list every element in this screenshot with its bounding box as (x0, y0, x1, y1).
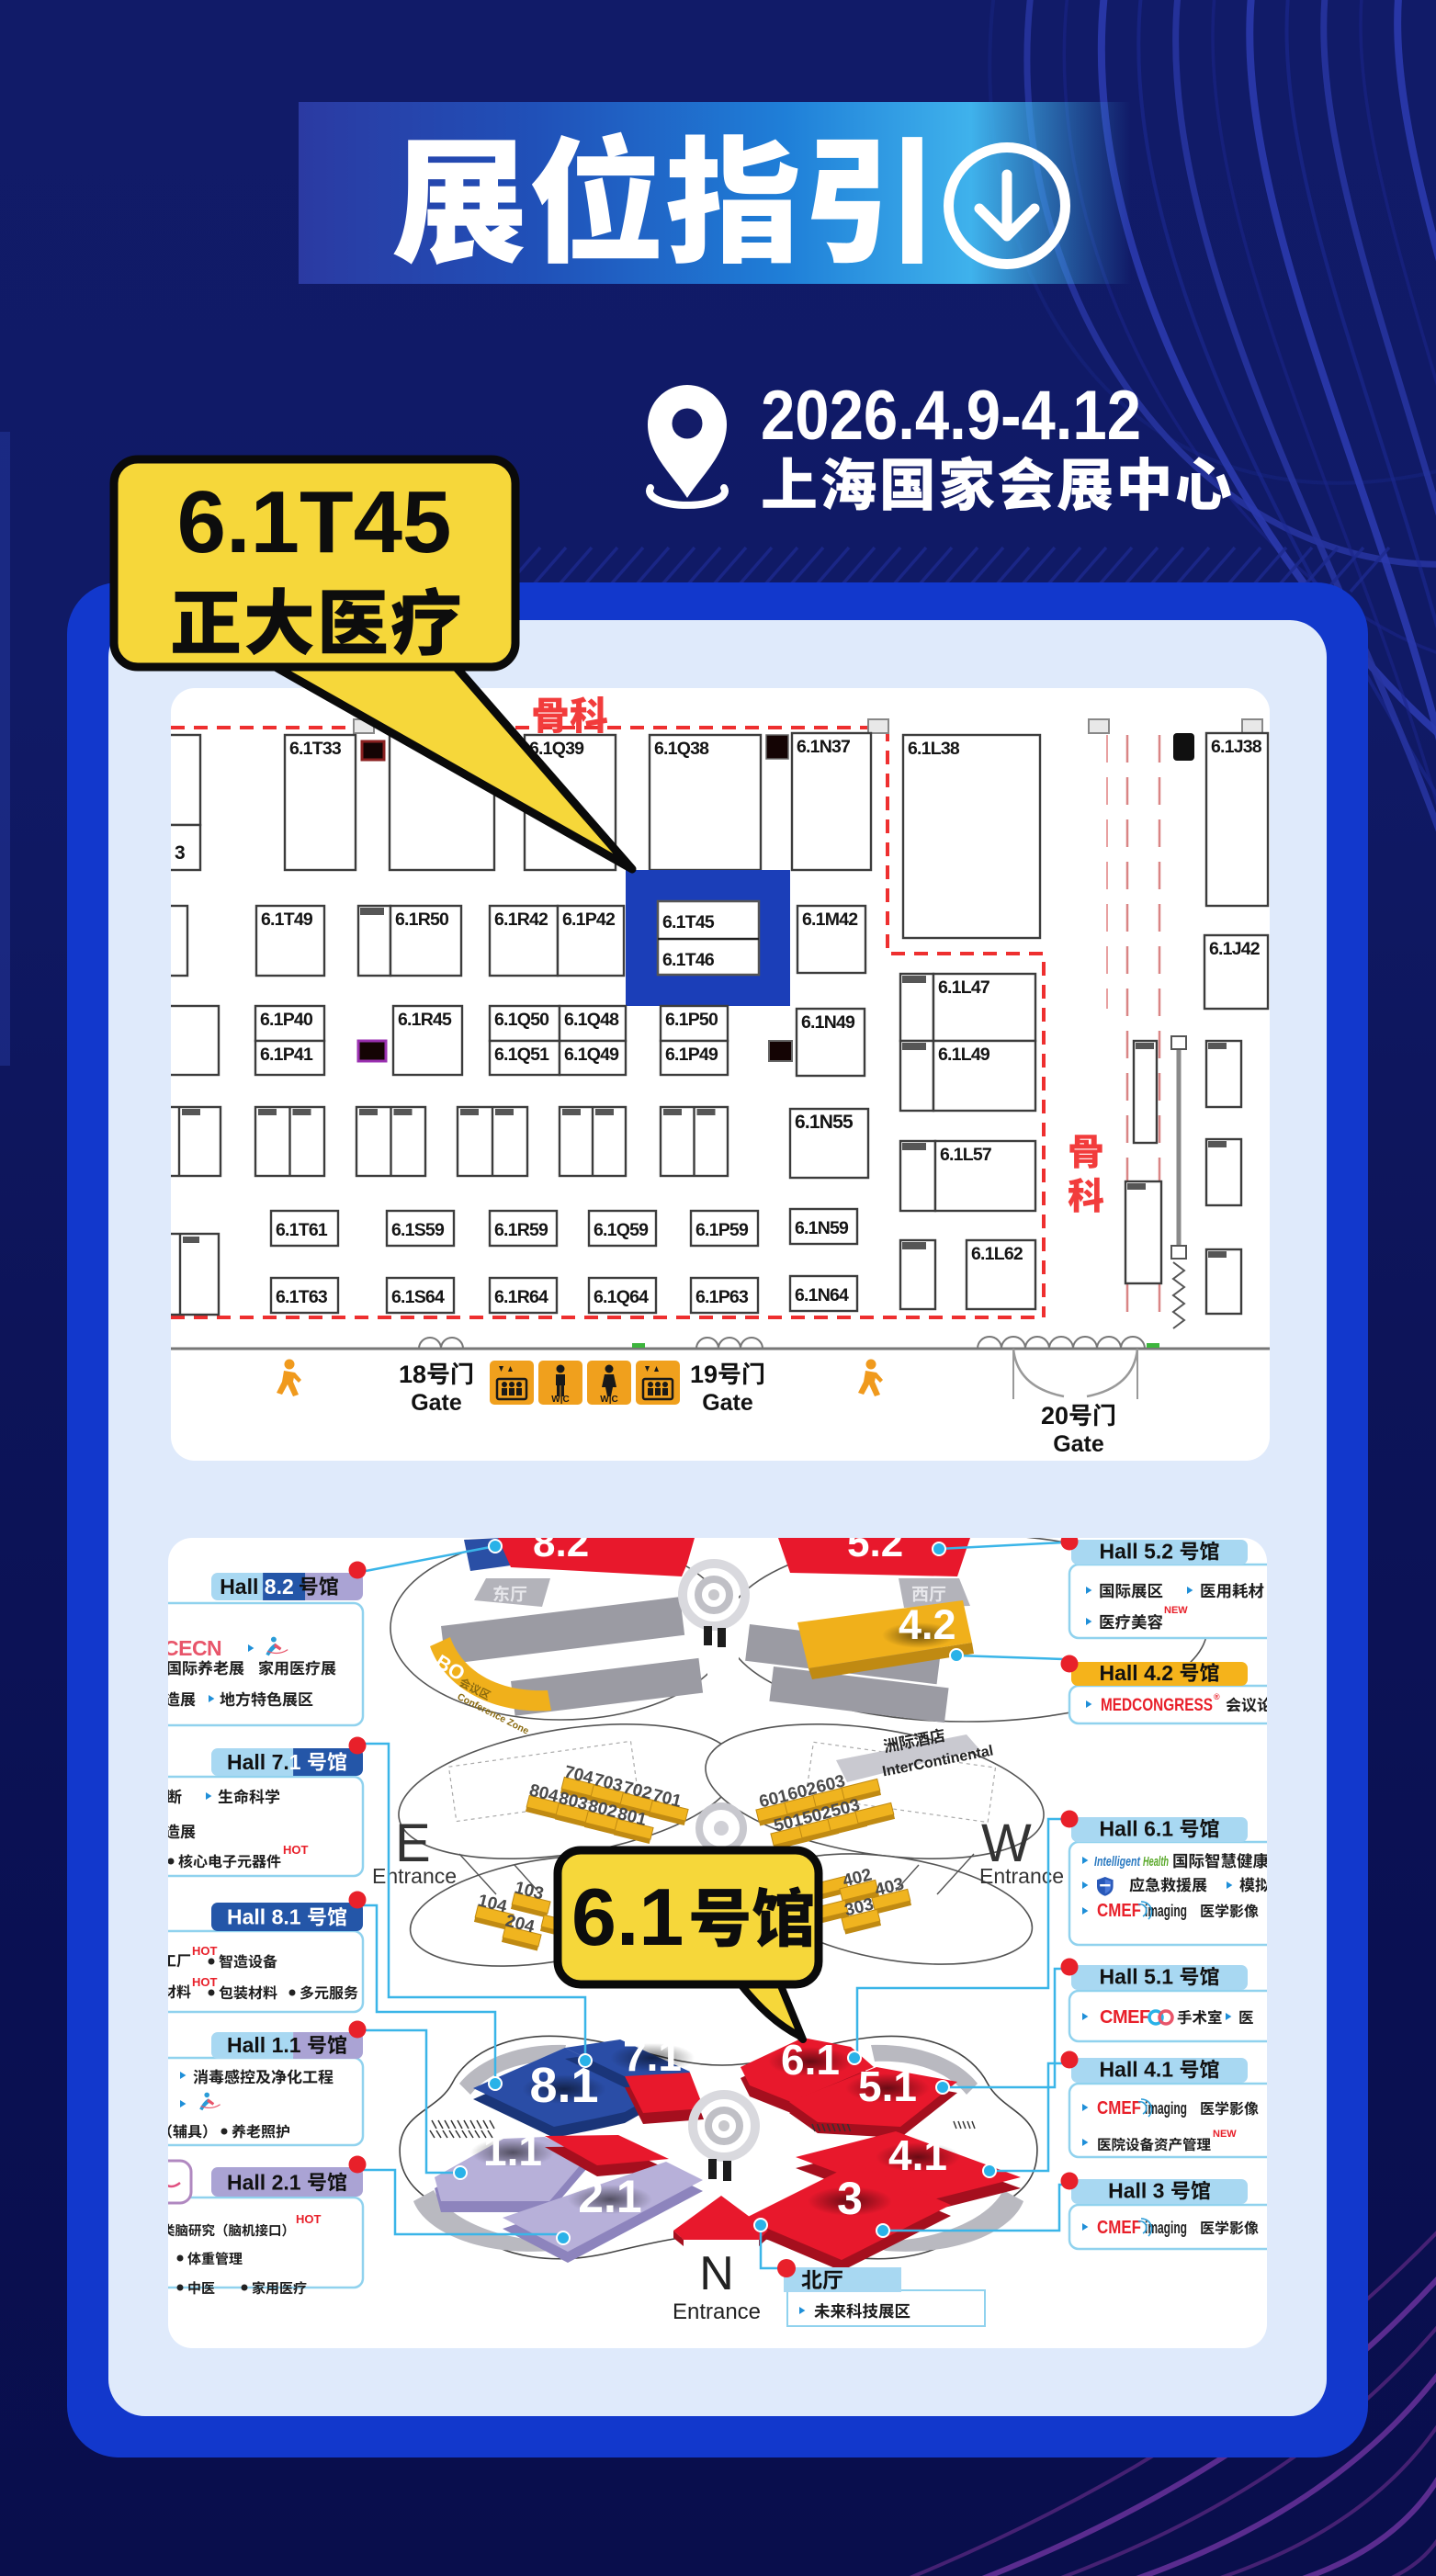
svg-text:Entrance: Entrance (372, 1864, 457, 1888)
svg-text:6.1Q48: 6.1Q48 (564, 1010, 619, 1030)
svg-text:1.1: 1.1 (483, 2127, 542, 2175)
svg-text:6.1T61: 6.1T61 (276, 1220, 328, 1240)
svg-text:Intelligent: Intelligent (1094, 1854, 1141, 1870)
svg-text:Hall 4.2: Hall 4.2 (1100, 1661, 1174, 1685)
svg-text:6.1L57: 6.1L57 (940, 1145, 991, 1165)
svg-text:5.2: 5.2 (847, 1538, 903, 1565)
svg-text:Hall 8.1: Hall 8.1 (227, 1905, 301, 1929)
svg-text:6.1T45: 6.1T45 (177, 473, 452, 571)
svg-text:6.1R59: 6.1R59 (494, 1220, 548, 1240)
svg-text:Entrance: Entrance (979, 1864, 1064, 1888)
svg-text:6.1R45: 6.1R45 (398, 1010, 452, 1030)
svg-text:CMEF: CMEF (1100, 2007, 1150, 2028)
svg-text:6.1Q49: 6.1Q49 (564, 1045, 619, 1065)
svg-text:CMEF: CMEF (1097, 1901, 1141, 1921)
svg-text:CECN: CECN (168, 1636, 221, 1660)
svg-text:6.1P50: 6.1P50 (665, 1010, 718, 1030)
svg-text:N: N (699, 2247, 734, 2300)
svg-text:Hall 5.2: Hall 5.2 (1100, 1540, 1174, 1564)
svg-text:6.1N59: 6.1N59 (795, 1218, 849, 1238)
svg-text:20: 20 (1041, 1402, 1069, 1429)
svg-text:6.1: 6.1 (571, 1871, 684, 1962)
svg-text:HOT: HOT (192, 1975, 218, 1989)
svg-text:6.1S64: 6.1S64 (391, 1287, 445, 1307)
svg-text:5.1: 5.1 (858, 2062, 917, 2110)
svg-text:CMEF: CMEF (1097, 2218, 1141, 2238)
svg-text:CMEF: CMEF (1097, 2098, 1141, 2118)
svg-text:6.1R64: 6.1R64 (494, 1287, 548, 1307)
svg-text:Gate: Gate (702, 1390, 753, 1416)
svg-text:W|C: W|C (600, 1395, 617, 1405)
svg-text:8.2: 8.2 (265, 1575, 294, 1599)
svg-text:6.1T63: 6.1T63 (276, 1287, 328, 1307)
svg-text:7.1: 7.1 (623, 2032, 682, 2080)
svg-text:6.1Q51: 6.1Q51 (494, 1045, 549, 1065)
svg-text:6.1Q50: 6.1Q50 (494, 1010, 549, 1030)
svg-text:HOT: HOT (192, 1944, 218, 1958)
svg-text:HOT: HOT (283, 1843, 309, 1857)
svg-text:6.1N49: 6.1N49 (801, 1012, 855, 1033)
svg-text:4.2: 4.2 (899, 1601, 956, 1648)
svg-text:Hall 4.1: Hall 4.1 (1100, 2058, 1174, 2082)
svg-text:Entrance: Entrance (673, 2299, 761, 2324)
svg-text:6.1Q59: 6.1Q59 (594, 1220, 649, 1240)
svg-text:6.1J38: 6.1J38 (1211, 737, 1262, 757)
svg-text:Hall 1.: Hall 1. (227, 2033, 289, 2057)
svg-text:6.1L47: 6.1L47 (938, 977, 989, 998)
svg-text:6.1N64: 6.1N64 (795, 1285, 849, 1305)
svg-text:6.1Q64: 6.1Q64 (594, 1287, 649, 1307)
svg-text:Gate: Gate (1053, 1431, 1104, 1457)
svg-text:Gate: Gate (411, 1390, 462, 1416)
svg-text:6.1P41: 6.1P41 (260, 1045, 313, 1065)
svg-text:3: 3 (837, 2173, 863, 2224)
svg-text:NEW: NEW (1213, 2129, 1237, 2140)
svg-text:6.1: 6.1 (781, 2036, 840, 2084)
svg-text:Health: Health (1143, 1854, 1169, 1870)
svg-text:Hall 7.: Hall 7. (227, 1750, 289, 1774)
svg-text:Hall 2.1: Hall 2.1 (227, 2170, 301, 2194)
svg-text:1: 1 (289, 2033, 301, 2057)
svg-text:18: 18 (399, 1361, 426, 1388)
svg-text:Hall 6.1: Hall 6.1 (1100, 1817, 1174, 1841)
svg-text:MEDCONGRESS: MEDCONGRESS (1101, 1696, 1213, 1715)
svg-text:Hall 5.1: Hall 5.1 (1100, 1965, 1174, 1989)
svg-text:NEW: NEW (1164, 1605, 1188, 1616)
svg-text:6.1N55: 6.1N55 (795, 1112, 854, 1133)
svg-text:6.1P49: 6.1P49 (665, 1045, 718, 1065)
svg-text:Hall 3: Hall 3 (1108, 2179, 1164, 2203)
svg-text:19: 19 (690, 1361, 718, 1388)
svg-text:4.1: 4.1 (888, 2131, 947, 2179)
svg-text:Hall: Hall (220, 1575, 258, 1599)
svg-text:6.1P59: 6.1P59 (695, 1220, 749, 1240)
svg-text:6.1S59: 6.1S59 (391, 1220, 445, 1240)
svg-text:8.2: 8.2 (533, 1538, 589, 1565)
svg-text:6.1J42: 6.1J42 (1209, 939, 1261, 959)
svg-text:6.1P63: 6.1P63 (695, 1287, 749, 1307)
svg-text:6.1P40: 6.1P40 (260, 1010, 313, 1030)
svg-text:1: 1 (289, 1750, 301, 1774)
svg-text:6.1L62: 6.1L62 (971, 1244, 1023, 1264)
svg-text:2.1: 2.1 (578, 2171, 642, 2222)
svg-text:HOT: HOT (296, 2212, 322, 2226)
svg-text:W|C: W|C (551, 1395, 569, 1405)
svg-text:6.1T46: 6.1T46 (662, 950, 715, 970)
svg-text:®: ® (1214, 1692, 1220, 1701)
svg-text:6.1L49: 6.1L49 (938, 1045, 990, 1065)
